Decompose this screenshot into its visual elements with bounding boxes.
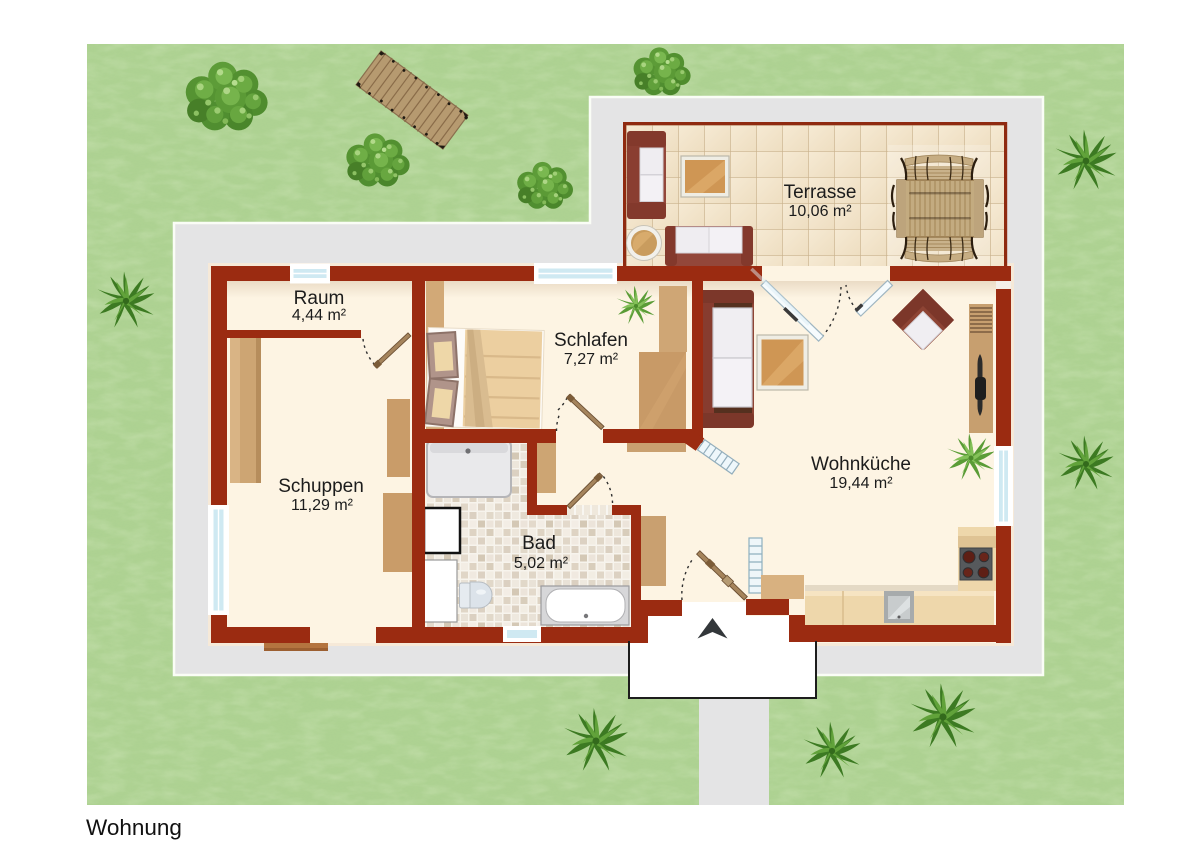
svg-text:19,44 m²: 19,44 m²	[829, 475, 893, 492]
svg-text:Schlafen: Schlafen	[554, 330, 628, 351]
svg-text:5,02 m²: 5,02 m²	[514, 555, 569, 572]
svg-text:Wohnküche: Wohnküche	[811, 454, 911, 475]
svg-text:Bad: Bad	[522, 533, 556, 554]
svg-text:Wohnung: Wohnung	[86, 815, 182, 840]
svg-text:4,44 m²: 4,44 m²	[292, 307, 347, 324]
svg-text:Raum: Raum	[294, 288, 345, 309]
svg-text:7,27 m²: 7,27 m²	[564, 351, 619, 368]
svg-text:Terrasse: Terrasse	[784, 182, 857, 203]
svg-text:10,06 m²: 10,06 m²	[788, 203, 852, 220]
svg-text:11,29 m²: 11,29 m²	[291, 497, 354, 514]
svg-text:Schuppen: Schuppen	[278, 476, 364, 497]
